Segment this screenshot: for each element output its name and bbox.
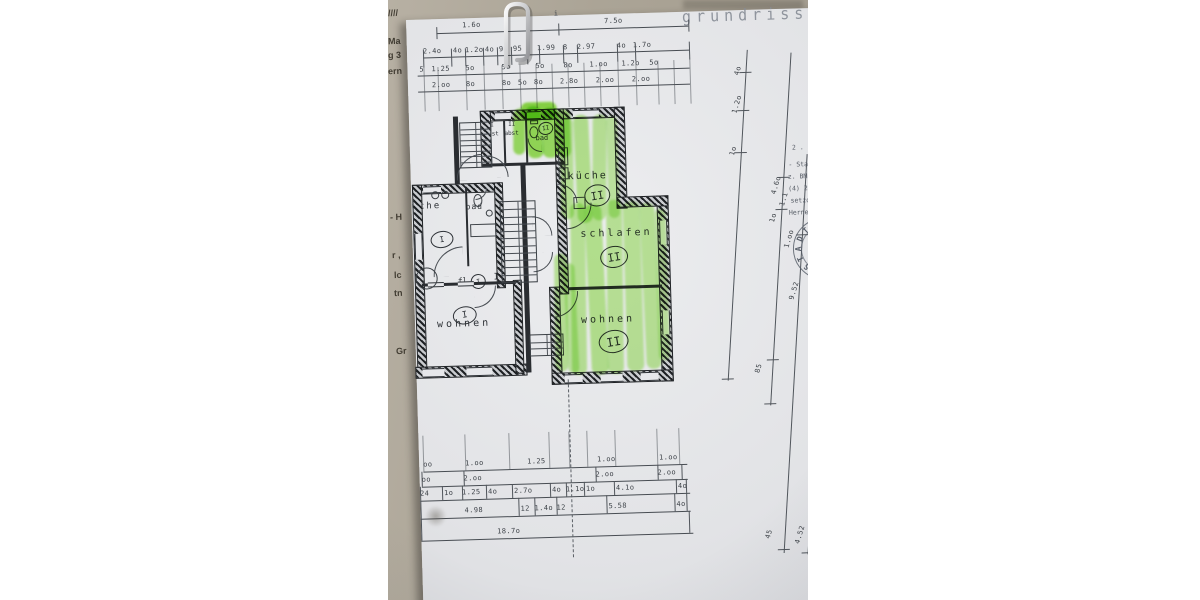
under-paper-text-fragment: ern <box>388 66 402 76</box>
dimension-cross-tick <box>739 72 751 73</box>
under-paper-text-fragment: Ma <box>388 36 401 46</box>
stamp-arc-letter: A <box>794 246 803 251</box>
dim-label-rotated: 45 <box>764 529 774 540</box>
dimension-cross-tick <box>778 549 790 550</box>
extension-line <box>437 67 439 111</box>
dimension-cross-tick <box>802 552 808 553</box>
dimension-tick <box>421 519 423 541</box>
under-paper-text-fragment: //// <box>388 8 398 18</box>
dim-label-rotated: 85 <box>753 363 763 374</box>
under-paper-text-fragment: tn <box>394 288 403 298</box>
dim-label-rotated: 1o <box>728 146 738 157</box>
plan-sheet: grundriss e 1.6oi7.5o2.4o4o1.2o4o95951.9… <box>406 7 808 600</box>
dim-label-rotated: 4o <box>733 65 743 76</box>
right-dimension-chains: 4o1.2o1o4.6o1.11o4.8o1.oo9.5285454.52 <box>416 5 808 600</box>
extension-line <box>422 436 424 472</box>
dimension-cross-tick <box>722 378 734 379</box>
paper-clip-icon <box>492 0 544 74</box>
stamp-note-line: setzos <box>790 196 808 205</box>
dim-label-rotated: 4.52 <box>793 525 806 545</box>
dimension-cross-tick <box>775 209 787 210</box>
dimension-tick <box>436 27 437 39</box>
dimension-cross-tick <box>735 152 747 153</box>
dim-label: 2.4o <box>423 47 442 56</box>
stamp-note-line: - Stadt <box>788 160 808 169</box>
under-paper-text-fragment: r , <box>392 250 401 260</box>
floor-plan-page: grundriss e 1.6oi7.5o2.4o4o1.2o4o95951.9… <box>406 7 808 600</box>
dimension-cross-tick <box>767 359 779 360</box>
extension-line <box>423 67 425 111</box>
dim-label-rotated: 1.1 <box>778 192 790 207</box>
dim-label: 1.25 <box>431 65 450 74</box>
stadt-herne-stamp: STADTHER <box>792 217 808 283</box>
under-paper-text-fragment: lc <box>394 270 402 280</box>
stamp-note-line: z. BM. <box>788 172 808 181</box>
dimension-tick <box>421 472 422 487</box>
dimension-cross-tick <box>764 403 776 404</box>
under-paper-text-fragment: g 3 <box>388 50 401 60</box>
dim-label-rotated: 1o <box>768 212 778 223</box>
under-paper-text-fragment: - H <box>390 212 402 222</box>
window-opening <box>414 234 423 260</box>
dimension-cross-tick <box>737 110 749 111</box>
screenshot-canvas: ////Mag 3ern- Hr ,lctnGr grundriss e 1.6… <box>0 0 1200 600</box>
bathroom-kitchen-fixture <box>431 191 439 199</box>
stamp-note-line: (4) 2 <box>788 184 808 193</box>
under-paper-text-fragment: Gr <box>396 346 407 356</box>
stamp-note-line: 2 . <box>792 143 804 151</box>
dim-label: 2.oo <box>432 81 451 90</box>
stamp-note-line: Herne, d <box>789 208 808 217</box>
dimension-tick <box>420 501 422 519</box>
floorplan-photo: ////Mag 3ern- Hr ,lctnGr grundriss e 1.6… <box>388 0 808 600</box>
